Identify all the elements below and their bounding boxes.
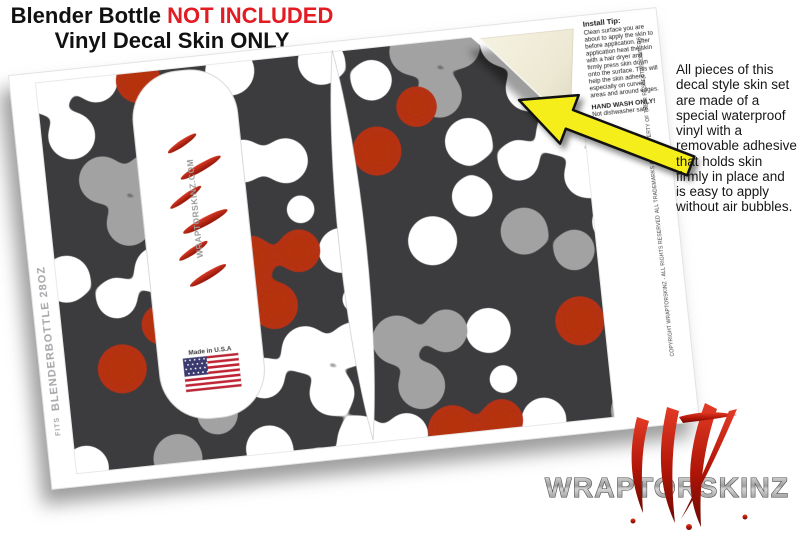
brand-logo: WRAPTORSKINZ [541,401,799,533]
usa-flag [183,353,242,393]
headline-product: Blender Bottle [11,3,167,28]
side-note: All pieces of this decal style skin set … [676,62,797,215]
headline-line1: Blender Bottle NOT INCLUDED [4,4,340,29]
claw-marks [631,403,748,530]
arrow-shape [510,76,700,183]
fits-prefix: FITS [53,416,62,436]
capsule-logo-text: WRAPTORSKINZ.COM [185,158,205,258]
made-in-usa: Made in U.S.A [180,345,245,398]
headline-not-included: NOT INCLUDED [167,3,333,28]
copyright-line1: COPYRIGHT WRAPTORSKINZ - ALL RIGHTS RESE… [655,215,676,357]
product-image: Blender Bottle NOT INCLUDED Vinyl Decal … [0,0,799,533]
